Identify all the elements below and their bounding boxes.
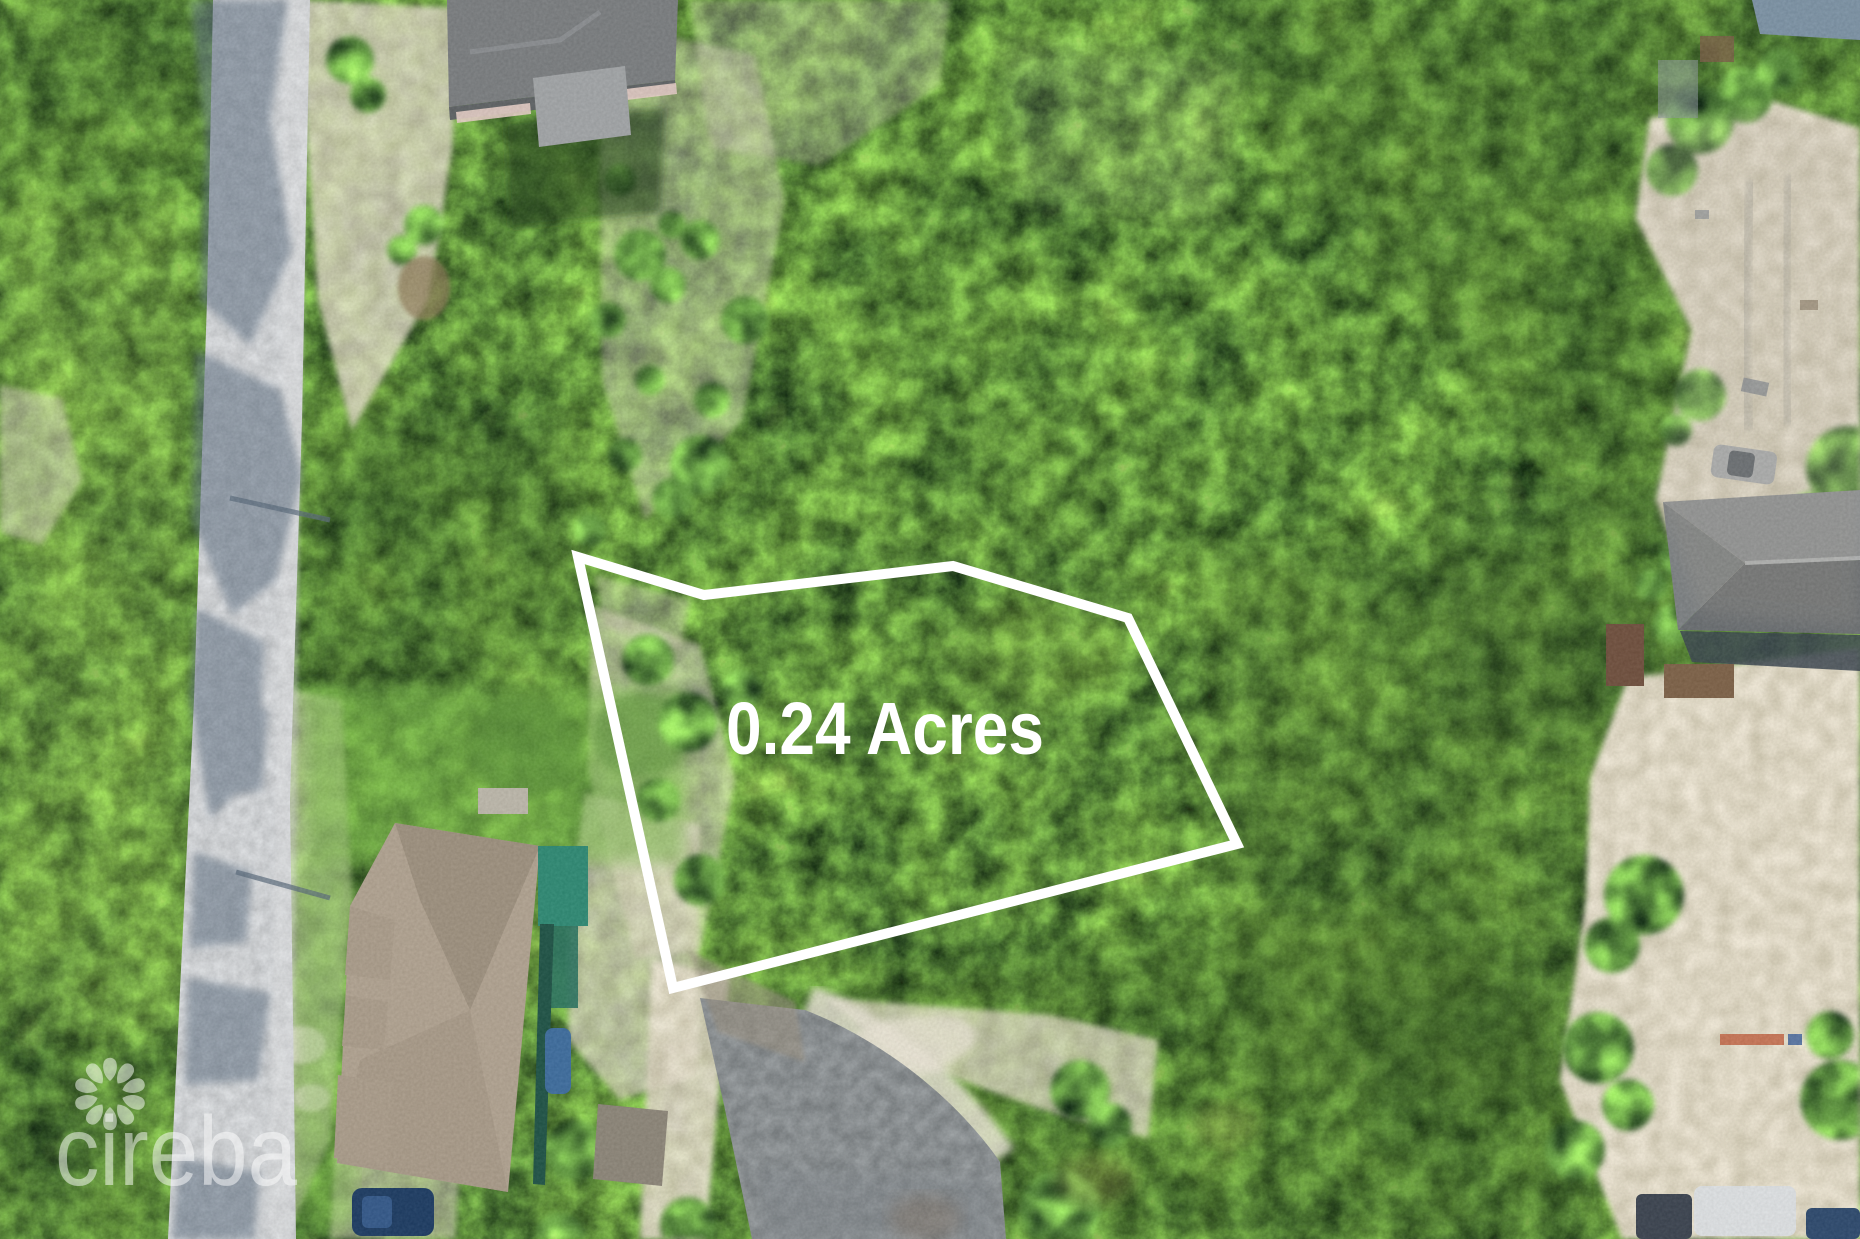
svg-text:cireba: cireba: [55, 1096, 297, 1206]
svg-text:0.24 Acres: 0.24 Acres: [726, 687, 1044, 770]
